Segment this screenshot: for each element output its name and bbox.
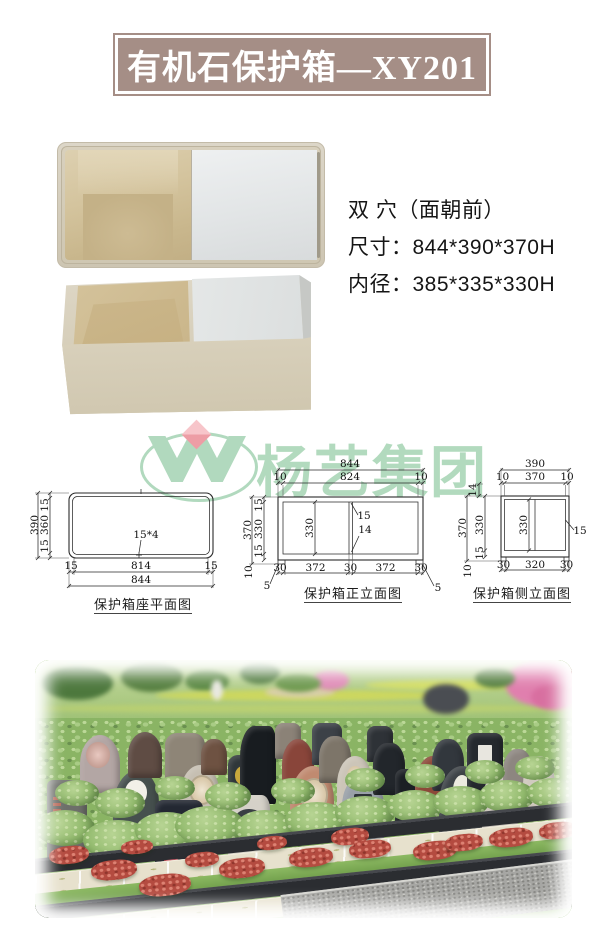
title-banner: 有机石保护箱—XY201 bbox=[113, 33, 491, 96]
dim-label: 15 bbox=[253, 544, 265, 557]
flower-cluster bbox=[488, 826, 534, 849]
dim-label: 370 bbox=[525, 471, 545, 483]
flowers-layer bbox=[35, 660, 572, 918]
dim-label: 372 bbox=[375, 562, 395, 574]
dim-label: 824 bbox=[340, 471, 360, 483]
spec-size: 尺寸：844*390*370H bbox=[348, 229, 555, 266]
spec-inner-size: 内径：385*335*330H bbox=[348, 266, 555, 303]
dim-label: 15 bbox=[474, 546, 486, 559]
dim-label: 30 bbox=[344, 562, 357, 574]
dim-label: 330 bbox=[253, 519, 265, 539]
flower-cluster bbox=[138, 871, 192, 898]
catalog-page: 有机石保护箱—XY201 双 穴（面朝前） 尺寸：844*390*370H 内径… bbox=[0, 0, 600, 932]
spec-cavity: 双 穴（面朝前） bbox=[348, 192, 555, 229]
dim-label: 5 bbox=[435, 582, 442, 594]
dim-label: 15 bbox=[204, 560, 217, 572]
dim-label: 390 bbox=[525, 458, 545, 470]
dim-label: 844 bbox=[131, 574, 151, 586]
dim-label: 15 bbox=[39, 539, 51, 552]
product-photo-top-view bbox=[57, 142, 325, 268]
box-cavity bbox=[65, 150, 191, 260]
box-lid-seam bbox=[317, 152, 320, 258]
dim-label: 330 bbox=[474, 515, 486, 535]
dim-label: 330 bbox=[304, 518, 316, 538]
flower-cluster bbox=[90, 858, 138, 883]
dim-label: 10 bbox=[462, 564, 474, 577]
flower-cluster bbox=[444, 832, 484, 853]
page-title: 有机石保护箱—XY201 bbox=[127, 40, 477, 89]
dim-label: 5 bbox=[264, 580, 271, 592]
drawing-plan-view: 390 15 360 15 15 814 15 844 15*4 bbox=[30, 445, 245, 597]
dim-label: 330 bbox=[518, 515, 530, 535]
dim-label: 372 bbox=[305, 562, 325, 574]
dim-label: 370 bbox=[458, 518, 469, 538]
dim-label: 15 bbox=[253, 498, 265, 511]
flower-cluster bbox=[218, 856, 266, 881]
drawing-front-elevation: 844 10 824 10 370 15 330 15 10 5 5 330 1… bbox=[243, 440, 460, 598]
drawing-side-elevation: 390 10 370 10 14 370 330 15 10 330 15 30… bbox=[458, 440, 600, 598]
flower-cluster bbox=[288, 846, 334, 869]
caption-side-elevation: 保护箱侧立面图 bbox=[463, 583, 581, 602]
dim-label: 15 bbox=[573, 525, 586, 537]
spec-block: 双 穴（面朝前） 尺寸：844*390*370H 内径：385*335*330H bbox=[348, 192, 555, 303]
caption-plan-view: 保护箱座平面图 bbox=[85, 594, 201, 613]
dim-label: 814 bbox=[131, 560, 151, 572]
dim-label: 844 bbox=[340, 458, 360, 470]
flower-cluster bbox=[120, 838, 153, 855]
dim-label: 10 bbox=[414, 471, 427, 483]
dim-label: 30 bbox=[273, 562, 286, 574]
title-banner-fill: 有机石保护箱—XY201 bbox=[118, 38, 486, 91]
dim-label: 10 bbox=[560, 471, 573, 483]
dim-label: 15 bbox=[39, 498, 51, 511]
dim-label: 30 bbox=[560, 559, 573, 571]
product-photo-perspective bbox=[47, 272, 337, 420]
dim-label: 10 bbox=[496, 471, 509, 483]
box-lid bbox=[191, 150, 317, 260]
flower-cluster bbox=[538, 820, 572, 841]
dim-label: 15 bbox=[64, 560, 77, 572]
dim-label: 10 bbox=[243, 565, 255, 578]
dim-label: 14 bbox=[467, 483, 479, 497]
cemetery-photo bbox=[35, 660, 572, 918]
dim-label: 15 bbox=[357, 510, 370, 522]
flower-cluster bbox=[48, 844, 90, 866]
dim-label: 360 bbox=[39, 515, 51, 535]
dim-label: 14 bbox=[358, 524, 372, 536]
dim-label: 30 bbox=[414, 562, 427, 574]
caption-front-elevation: 保护箱正立面图 bbox=[294, 583, 412, 602]
flower-cluster bbox=[184, 850, 219, 868]
dim-label: 30 bbox=[497, 559, 510, 571]
flower-cluster bbox=[256, 834, 287, 851]
dim-label: 15*4 bbox=[133, 529, 159, 541]
dim-label: 320 bbox=[525, 559, 545, 571]
dim-label: 10 bbox=[273, 471, 286, 483]
